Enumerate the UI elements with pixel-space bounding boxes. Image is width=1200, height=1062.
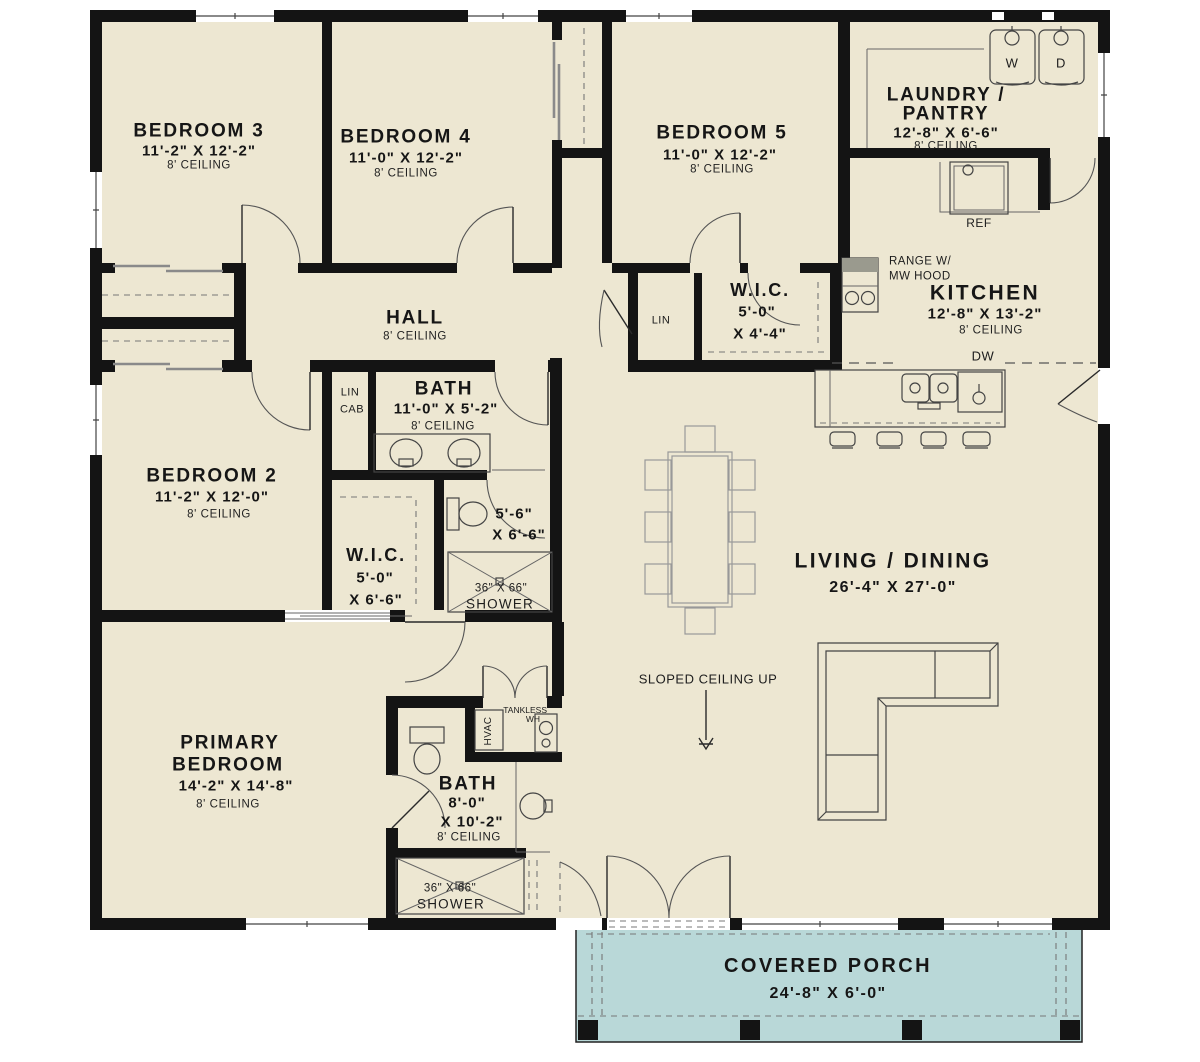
bedroom5-dims: 11'-0" X 12'-2" (663, 148, 777, 163)
laundry-ceiling: 8' CEILING (914, 141, 978, 153)
shower1-size: 36" X 66" (475, 583, 527, 595)
bedroom3-name: BEDROOM 3 (133, 122, 264, 141)
bath-hall-name: BATH (415, 380, 474, 399)
primary-bedroom-ceiling: 8' CEILING (196, 799, 260, 811)
covered-porch-name: COVERED PORCH (724, 956, 932, 976)
lin-cab-label-1: LIN (341, 388, 360, 399)
covered-porch-dims: 24'-8" X 6'-0" (769, 986, 886, 1002)
wic-bedroom2-dims-2: X 6'-6" (349, 593, 403, 608)
wic-bedroom2-dims-1: 5'-0" (356, 571, 393, 586)
primary-bath-dims-2: X 10'-2" (441, 815, 504, 830)
bedroom4-ceiling: 8' CEILING (374, 168, 438, 180)
primary-bath-dims-1: 8'-0" (448, 796, 485, 811)
floor-plan: BEDROOM 3 11'-2" X 12'-2" 8' CEILING BED… (0, 0, 1200, 1062)
bedroom4-name: BEDROOM 4 (340, 128, 471, 147)
bath-hall-dims: 11'-0" X 5'-2" (394, 402, 499, 417)
living-dining-dims: 26'-4" X 27'-0" (829, 580, 956, 596)
primary-bath-ceiling: 8' CEILING (437, 832, 501, 844)
hall-name: HALL (386, 309, 444, 328)
range-label-1: RANGE W/ (889, 256, 951, 268)
water-closet-dims-1: 5'-6" (495, 507, 532, 522)
dryer-label: D (1056, 57, 1066, 70)
laundry-name-2: PANTRY (903, 105, 990, 124)
lin-cab-label-2: CAB (340, 405, 364, 416)
wic-hall-dims-2: X 4'-4" (733, 327, 787, 342)
living-dining-name: LIVING / DINING (794, 551, 991, 572)
wic-bedroom2-name: W.I.C. (346, 546, 406, 564)
bath-hall-ceiling: 8' CEILING (411, 421, 475, 433)
range-label-2: MW HOOD (889, 271, 951, 283)
primary-bedroom-dims: 14'-2" X 14'-8" (179, 779, 294, 794)
bedroom5-name: BEDROOM 5 (656, 124, 787, 143)
lin-label: LIN (652, 316, 671, 327)
bedroom2-name: BEDROOM 2 (146, 467, 277, 486)
dw-label: DW (972, 350, 995, 363)
primary-bedroom-name-1: PRIMARY (180, 734, 280, 753)
sloped-ceiling-label: SLOPED CEILING UP (639, 673, 778, 686)
primary-bedroom-name-2: BEDROOM (172, 756, 284, 775)
range-icon (842, 258, 878, 312)
ref-label: REF (966, 217, 992, 229)
primary-bath-name: BATH (439, 775, 498, 794)
wic-hall-dims-1: 5'-0" (738, 305, 775, 320)
porch-slab (576, 924, 1082, 1042)
bedroom5-ceiling: 8' CEILING (690, 164, 754, 176)
bedroom3-dims: 11'-2" X 12'-2" (142, 144, 256, 159)
hvac-label: HVAC (484, 716, 494, 745)
bedroom4-dims: 11'-0" X 12'-2" (349, 151, 463, 166)
kitchen-dims: 12'-8" X 13'-2" (928, 307, 1043, 322)
kitchen-ceiling: 8' CEILING (959, 325, 1023, 337)
wic-hall-name: W.I.C. (730, 281, 790, 299)
laundry-name-1: LAUNDRY / (887, 86, 1006, 105)
shower2-size: 36" X 66" (424, 883, 476, 895)
kitchen-name: KITCHEN (930, 283, 1040, 304)
washer-label: W (1006, 57, 1019, 70)
shower1-label: SHOWER (466, 597, 534, 611)
hall-ceiling: 8' CEILING (383, 331, 447, 343)
laundry-dims: 12'-8" X 6'-6" (893, 126, 998, 141)
tankless-label-2: WH (526, 715, 540, 724)
shower2-label: SHOWER (417, 897, 485, 911)
bedroom3-ceiling: 8' CEILING (167, 160, 231, 172)
bedroom2-dims: 11'-2" X 12'-0" (155, 490, 269, 505)
water-closet-dims-2: X 6'-6" (492, 528, 546, 543)
bedroom2-ceiling: 8' CEILING (187, 509, 251, 521)
